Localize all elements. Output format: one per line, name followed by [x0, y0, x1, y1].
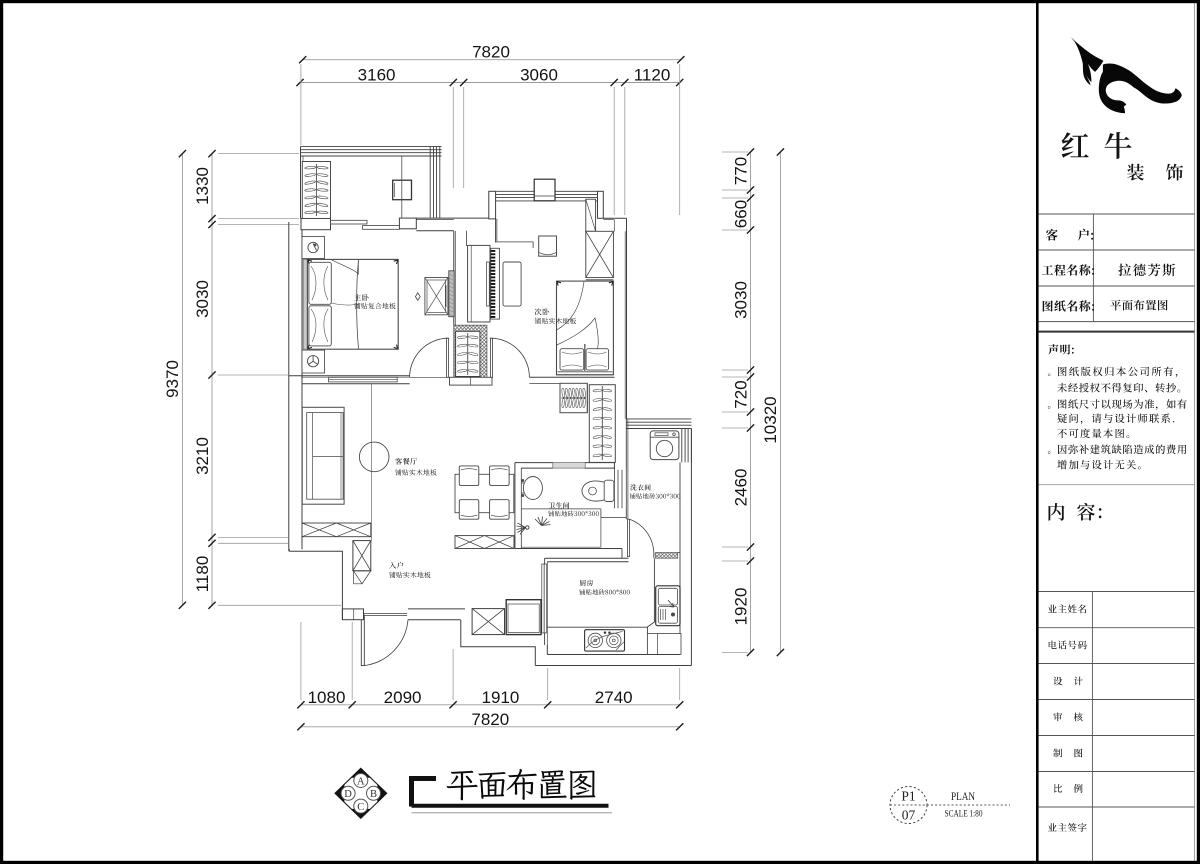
svg-text:P1: P1: [901, 789, 915, 804]
svg-text:B: B: [370, 789, 377, 800]
svg-text:1120: 1120: [634, 66, 671, 85]
svg-text:10320: 10320: [761, 396, 780, 443]
svg-text:D: D: [344, 789, 352, 800]
svg-text:3030: 3030: [731, 281, 750, 319]
svg-text:2460: 2460: [731, 469, 750, 507]
svg-text:3030: 3030: [193, 280, 212, 318]
svg-text:C: C: [357, 802, 364, 813]
svg-text:SCALE 1:80: SCALE 1:80: [945, 809, 983, 819]
svg-text:720: 720: [731, 380, 750, 408]
svg-text:3060: 3060: [520, 66, 558, 85]
svg-text:660: 660: [731, 200, 750, 228]
svg-text:2090: 2090: [384, 688, 422, 707]
svg-text:1910: 1910: [481, 688, 519, 707]
svg-text:3160: 3160: [358, 66, 396, 85]
svg-text:A: A: [357, 776, 365, 787]
svg-text:7820: 7820: [472, 43, 510, 62]
svg-text:770: 770: [731, 157, 750, 185]
svg-text:7820: 7820: [471, 710, 509, 729]
svg-text:1330: 1330: [193, 167, 212, 205]
svg-text:1080: 1080: [308, 688, 346, 707]
svg-text:2740: 2740: [595, 688, 633, 707]
svg-text:3210: 3210: [193, 437, 212, 475]
svg-text:07: 07: [902, 808, 916, 823]
svg-text:1920: 1920: [731, 588, 750, 626]
svg-text:PLAN: PLAN: [951, 791, 976, 803]
svg-text:1180: 1180: [193, 556, 212, 593]
svg-text:9370: 9370: [163, 360, 182, 398]
